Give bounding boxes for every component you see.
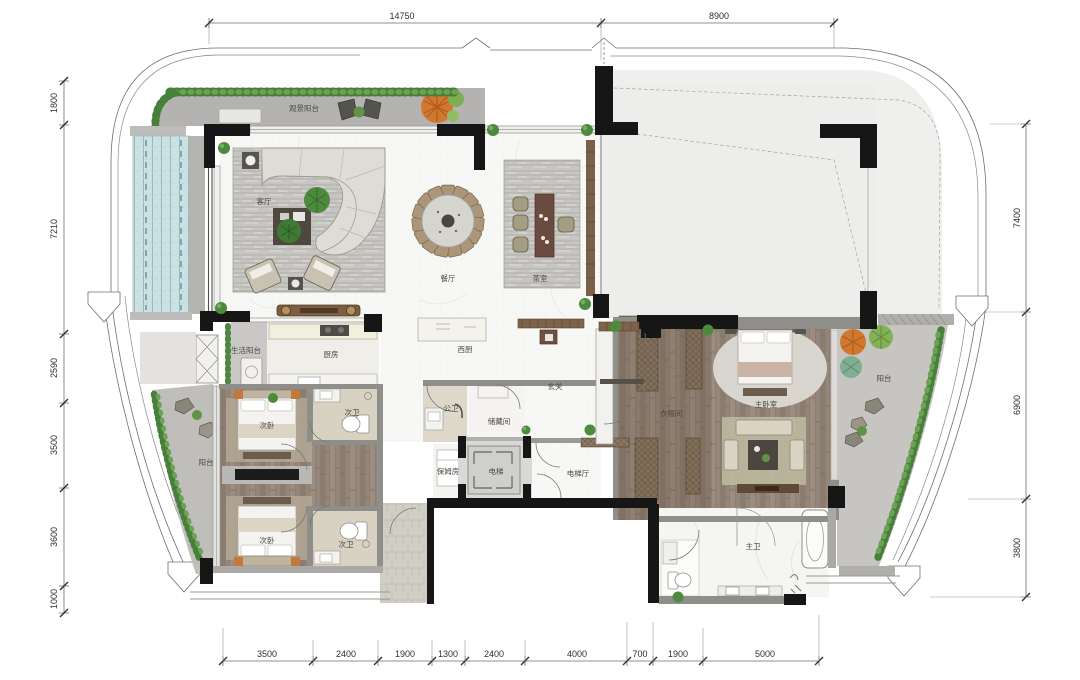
svg-text:电梯厅: 电梯厅 bbox=[567, 468, 590, 478]
svg-text:3500: 3500 bbox=[257, 649, 277, 659]
svg-text:阳台: 阳台 bbox=[199, 457, 214, 467]
svg-text:2400: 2400 bbox=[484, 649, 504, 659]
svg-text:储藏间: 储藏间 bbox=[488, 416, 511, 426]
svg-text:次卫: 次卫 bbox=[339, 539, 354, 549]
svg-text:主卫: 主卫 bbox=[746, 541, 761, 551]
svg-text:1800: 1800 bbox=[49, 93, 59, 113]
svg-text:次卧: 次卧 bbox=[260, 535, 275, 545]
svg-text:700: 700 bbox=[632, 649, 647, 659]
svg-text:公卫: 公卫 bbox=[444, 404, 459, 413]
svg-text:6900: 6900 bbox=[1012, 395, 1022, 415]
svg-text:3800: 3800 bbox=[1012, 538, 1022, 558]
svg-text:1900: 1900 bbox=[395, 649, 415, 659]
svg-text:次卫: 次卫 bbox=[345, 407, 360, 417]
svg-text:次卧: 次卧 bbox=[260, 420, 275, 430]
svg-text:餐厅: 餐厅 bbox=[441, 274, 456, 283]
svg-text:8900: 8900 bbox=[709, 11, 729, 21]
svg-text:厨房: 厨房 bbox=[324, 349, 339, 359]
svg-text:观景阳台: 观景阳台 bbox=[289, 103, 319, 113]
svg-text:阳台: 阳台 bbox=[877, 373, 892, 383]
svg-text:2400: 2400 bbox=[336, 649, 356, 659]
svg-text:生活阳台: 生活阳台 bbox=[231, 345, 261, 355]
svg-text:7210: 7210 bbox=[49, 219, 59, 239]
svg-text:主卧室: 主卧室 bbox=[755, 399, 778, 409]
svg-text:14750: 14750 bbox=[389, 11, 414, 21]
svg-text:客厅: 客厅 bbox=[257, 196, 272, 206]
svg-text:西厨: 西厨 bbox=[458, 345, 473, 354]
svg-text:1000: 1000 bbox=[49, 589, 59, 609]
svg-text:保姆房: 保姆房 bbox=[437, 466, 460, 476]
svg-text:衣帽间: 衣帽间 bbox=[660, 408, 683, 418]
svg-text:电梯: 电梯 bbox=[489, 466, 504, 476]
svg-text:玄关: 玄关 bbox=[548, 381, 563, 391]
svg-text:3600: 3600 bbox=[49, 527, 59, 547]
svg-text:7400: 7400 bbox=[1012, 208, 1022, 228]
svg-text:2590: 2590 bbox=[49, 358, 59, 378]
svg-text:1900: 1900 bbox=[668, 649, 688, 659]
svg-text:3500: 3500 bbox=[49, 435, 59, 455]
svg-text:1300: 1300 bbox=[438, 649, 458, 659]
svg-text:5000: 5000 bbox=[755, 649, 775, 659]
svg-text:4000: 4000 bbox=[567, 649, 587, 659]
svg-text:茶室: 茶室 bbox=[533, 273, 548, 283]
